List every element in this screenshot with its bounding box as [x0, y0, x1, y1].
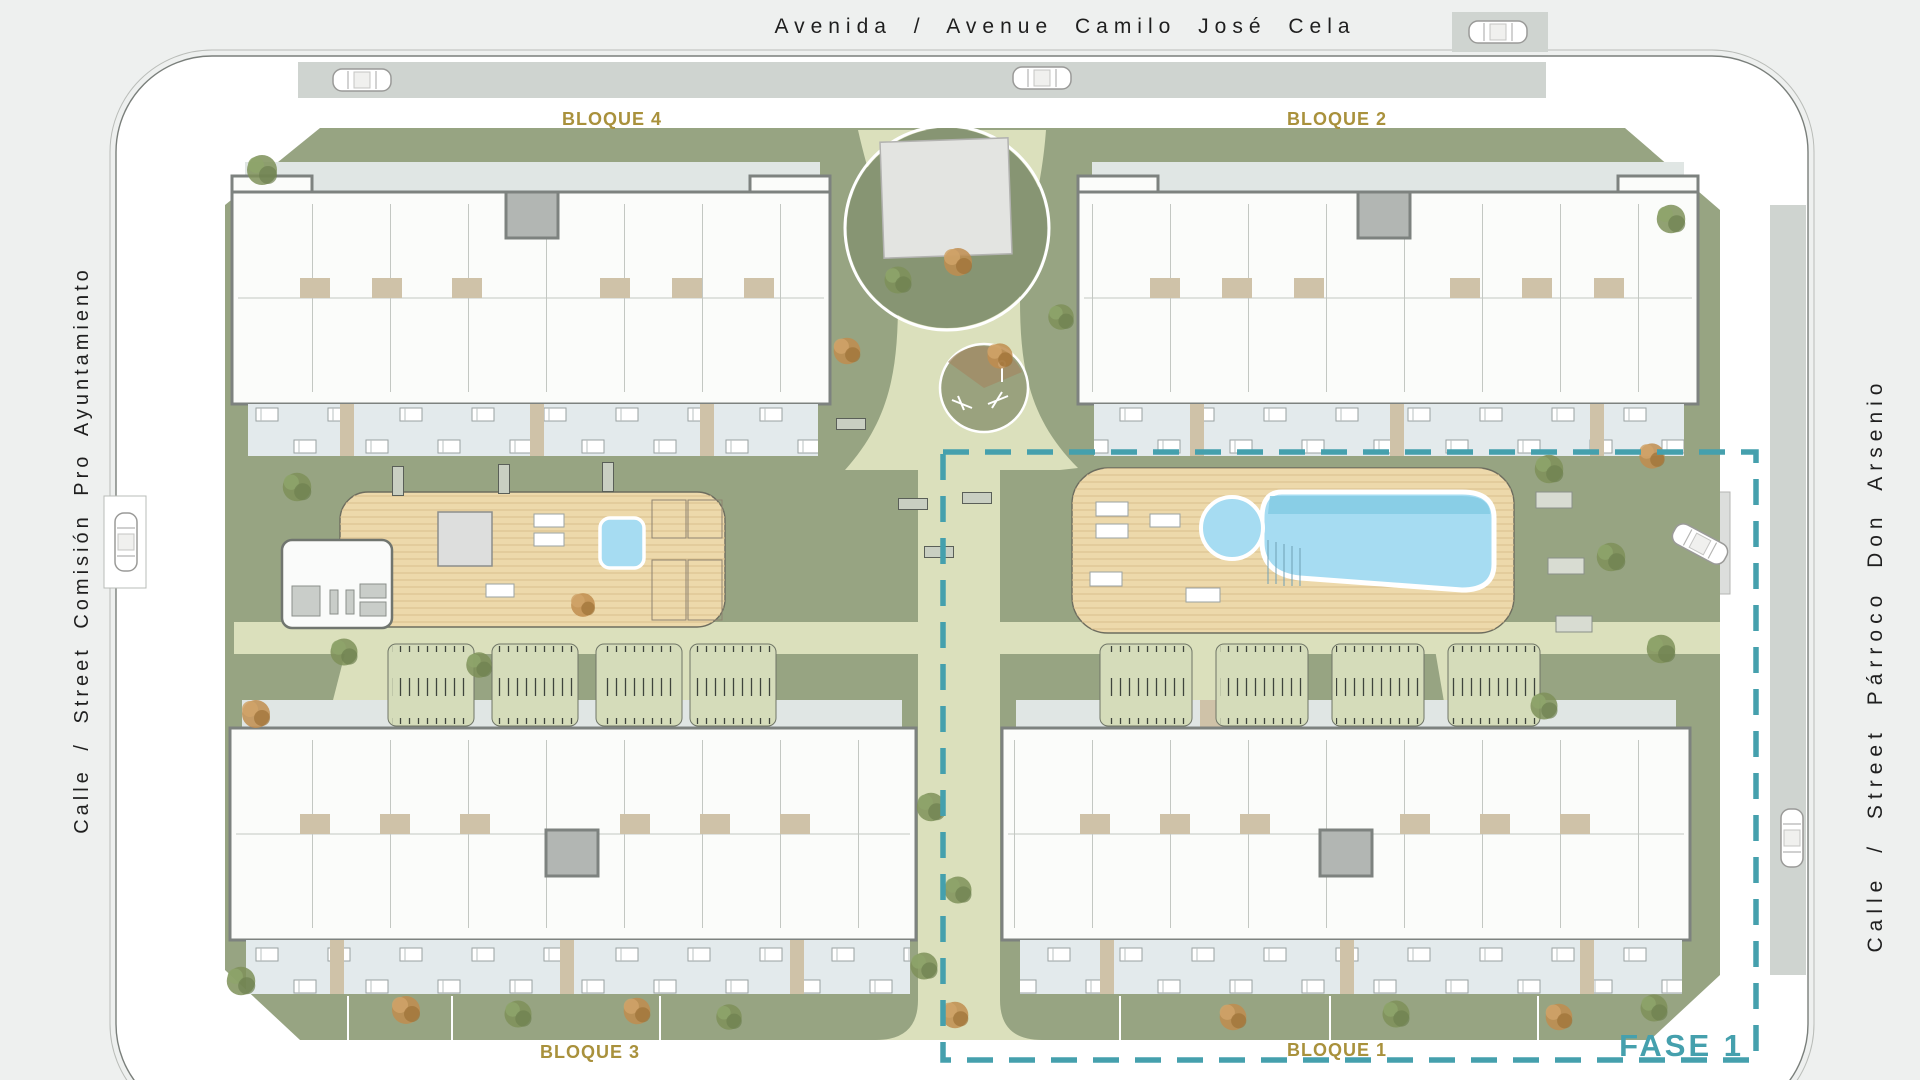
- tree-icon: [1531, 693, 1558, 720]
- plaza-building: [880, 138, 1012, 258]
- main-pool-shade: [1268, 496, 1490, 514]
- tree-icon: [624, 998, 651, 1025]
- bench-icon: [963, 493, 992, 504]
- bench-icon: [393, 467, 404, 496]
- amenity-deck: [282, 492, 725, 628]
- spa-pool: [600, 518, 644, 568]
- tree-icon: [1048, 304, 1074, 330]
- car-icon: [1013, 67, 1071, 89]
- pool-deck: [1072, 468, 1514, 633]
- tree-icon: [242, 700, 270, 728]
- tree-icon: [247, 155, 277, 185]
- tree-icon: [1657, 205, 1686, 234]
- building-bloque4: [232, 162, 830, 456]
- tree-icon: [911, 953, 938, 980]
- tree-icon: [227, 967, 256, 996]
- bloque3-terrace-loungers: [246, 940, 910, 994]
- car-icon: [115, 513, 137, 571]
- street-label-top: Avenida / Avenue Camilo José Cela: [774, 15, 1355, 38]
- phase-label: FASE 1: [1619, 1028, 1744, 1063]
- building-bloque3: [230, 700, 916, 994]
- block-label-bloque1: BLOQUE 1: [1287, 1040, 1387, 1060]
- tree-icon: [466, 652, 492, 678]
- bench-icon: [499, 465, 510, 494]
- tree-icon: [1383, 1001, 1410, 1028]
- tree-icon: [834, 338, 861, 365]
- street-label-right: Calle / Street Párroco Don Arsenio: [1864, 378, 1887, 953]
- tree-icon: [1641, 995, 1668, 1022]
- tree-icon: [944, 248, 972, 276]
- kids-pool: [1201, 497, 1263, 559]
- street-label-left: Calle / Street Comisión Pro Ayuntamiento: [71, 266, 93, 834]
- tree-icon: [1597, 543, 1626, 572]
- car-icon: [1781, 809, 1803, 867]
- tree-icon: [716, 1004, 742, 1030]
- tree-icon: [987, 343, 1012, 368]
- building-bloque1: [1002, 700, 1690, 994]
- deck-pavilion: [438, 512, 492, 566]
- bloque4-north-walkway: [245, 162, 820, 192]
- tree-icon: [392, 996, 420, 1024]
- bloque3-stair-core: [546, 830, 598, 876]
- tree-icon: [1639, 443, 1664, 468]
- top-road: [298, 62, 1546, 98]
- bloque2-north-walkway: [1092, 162, 1684, 192]
- block-label-bloque3: BLOQUE 3: [540, 1042, 640, 1062]
- bloque2-stair-core: [1358, 192, 1410, 238]
- bench-icon: [837, 419, 866, 430]
- bloque1-stair-core: [1320, 830, 1372, 876]
- block-label-bloque4: BLOQUE 4: [562, 109, 662, 129]
- tree-icon: [1535, 455, 1564, 484]
- tree-icon: [505, 1001, 532, 1028]
- tree-icon: [1647, 635, 1676, 664]
- bloque4-stair-core: [506, 192, 558, 238]
- tree-icon: [945, 877, 972, 904]
- tree-icon: [1220, 1004, 1247, 1031]
- building-bloque2: [1078, 162, 1698, 456]
- tree-icon: [571, 593, 595, 617]
- car-icon: [1469, 21, 1527, 43]
- bench-icon: [603, 463, 614, 492]
- tree-icon: [885, 267, 912, 294]
- tree-icon: [331, 639, 358, 666]
- tree-icon: [283, 473, 312, 502]
- block-label-bloque2: BLOQUE 2: [1287, 109, 1387, 129]
- bench-icon: [925, 547, 954, 558]
- site-plan: Avenida / Avenue Camilo José Cela Calle …: [0, 0, 1920, 1080]
- bench-icon: [899, 499, 928, 510]
- tree-icon: [1546, 1004, 1573, 1031]
- car-icon: [333, 69, 391, 91]
